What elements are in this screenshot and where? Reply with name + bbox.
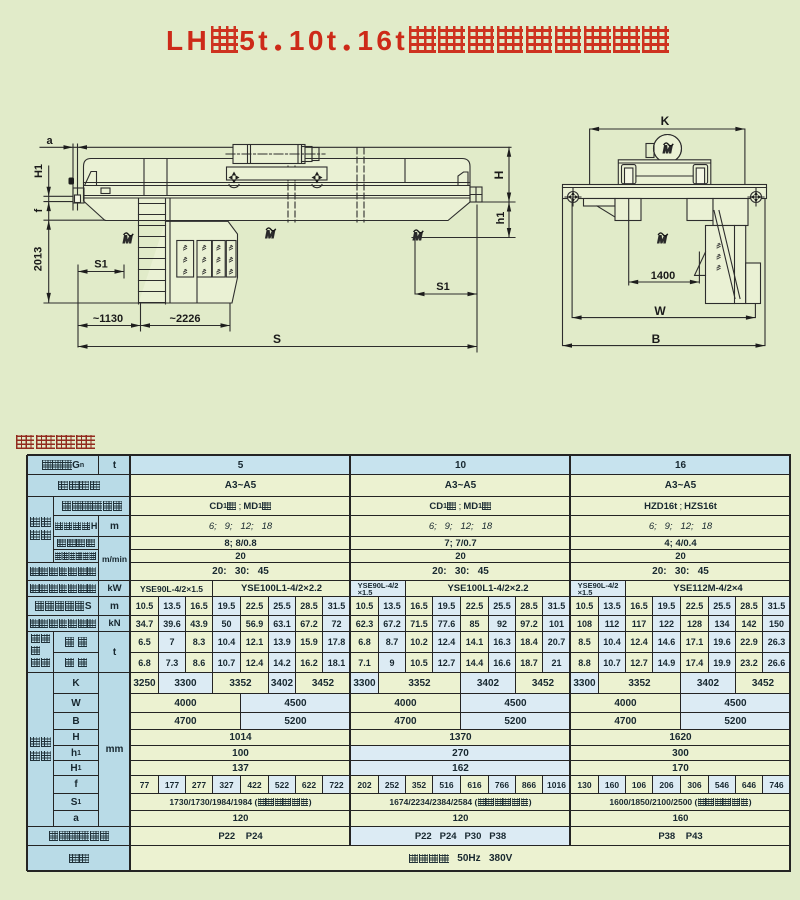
svg-text:S1: S1 (436, 281, 449, 293)
svg-text:H1: H1 (33, 164, 45, 178)
svg-text:~1130: ~1130 (93, 313, 123, 325)
svg-text:h1: h1 (495, 212, 507, 225)
svg-text:W: W (654, 304, 666, 318)
svg-text:~2226: ~2226 (170, 313, 201, 325)
svg-text:a: a (46, 135, 53, 147)
svg-text:H: H (492, 171, 506, 180)
svg-text:S1: S1 (94, 259, 107, 271)
svg-text:2013: 2013 (33, 247, 45, 271)
svg-text:S: S (273, 332, 281, 346)
svg-text:K: K (661, 114, 670, 128)
svg-text:f: f (33, 208, 45, 212)
svg-text:B: B (652, 332, 661, 346)
svg-text:1400: 1400 (651, 270, 675, 282)
